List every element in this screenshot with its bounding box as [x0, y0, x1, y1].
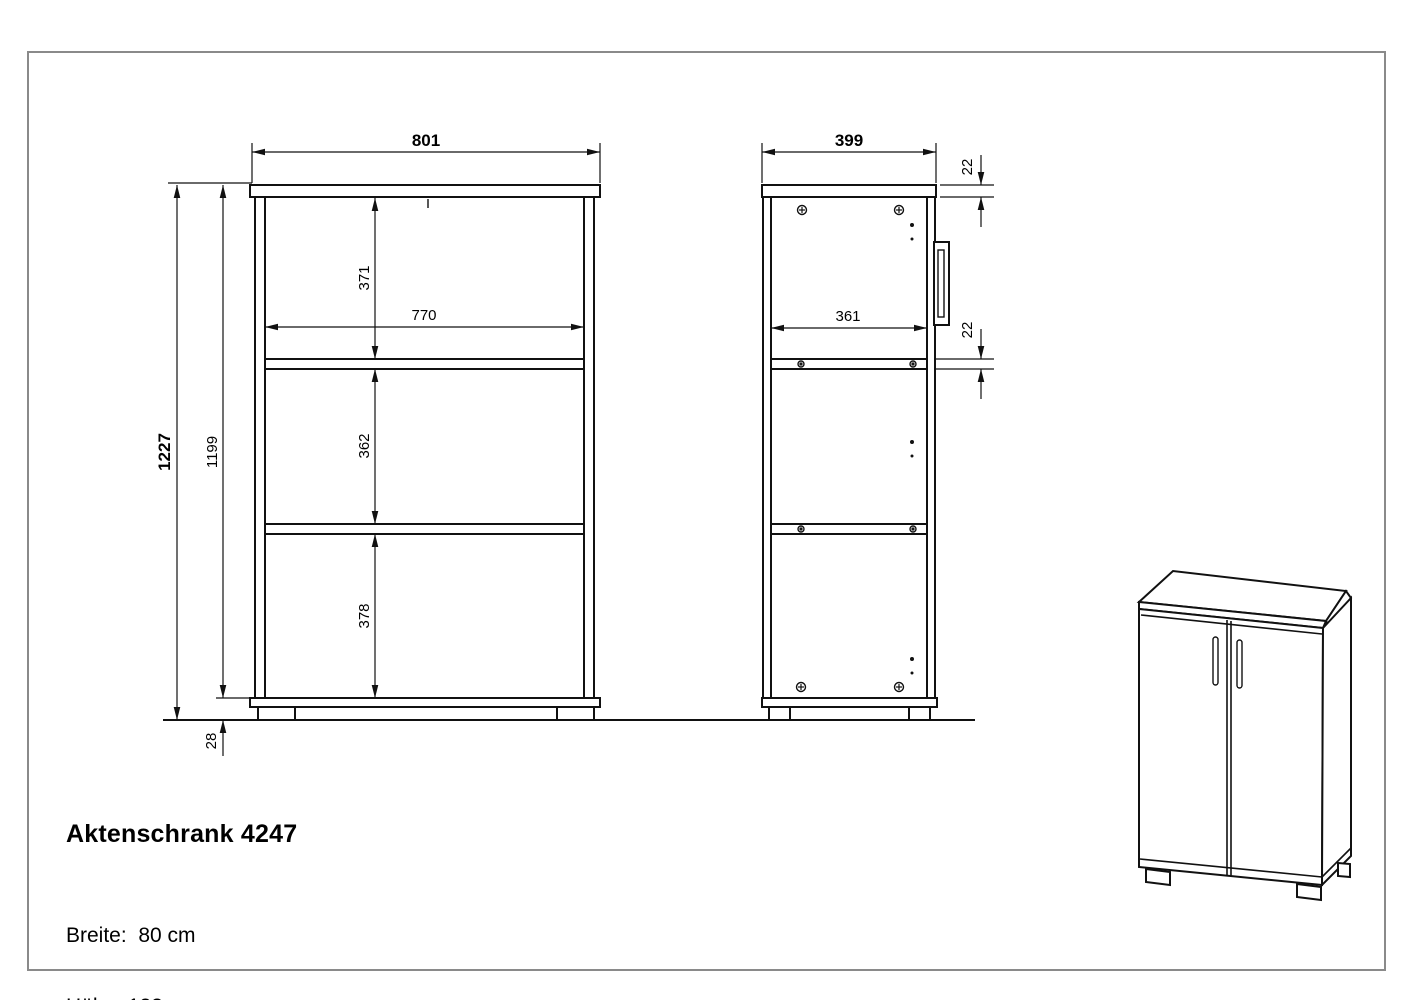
front-bottom-panel [250, 698, 600, 707]
front-foot-right [557, 707, 594, 720]
isometric-view [1139, 571, 1351, 900]
drawing-page: 801 770 371 362 378 1227 1199 28 [0, 0, 1414, 1000]
dim-inner-depth: 361 [835, 308, 860, 325]
keyhole-icon [425, 199, 431, 208]
dim-overall-height: 1227 [155, 433, 174, 471]
product-specs: Breite: 80 cm Höhe: 123 cm Tiefe: 40 cm [66, 877, 198, 1000]
side-top-panel [762, 185, 936, 197]
front-view [163, 185, 975, 720]
front-shelf-2 [265, 524, 584, 534]
dim-shelf-thickness: 22 [959, 322, 976, 339]
screw-icon [895, 683, 904, 692]
iso-left-handle [1213, 637, 1218, 685]
dim-top-section: 371 [356, 265, 373, 290]
dim-bottom-section: 378 [356, 603, 373, 628]
pin-holes [910, 223, 914, 675]
dim-foot-height: 28 [203, 733, 220, 750]
spec-hoehe: Höhe: 123 cm [66, 995, 198, 1000]
iso-right-handle [1237, 640, 1242, 688]
screw-icon [797, 683, 806, 692]
dim-body-height: 1199 [204, 436, 221, 468]
side-shelf-1 [771, 359, 927, 369]
dim-overall-depth: 399 [835, 131, 863, 150]
front-left-side-panel [255, 197, 265, 698]
iso-foot-left [1146, 869, 1170, 885]
shelf-screw-icon [798, 361, 916, 532]
side-handle-inner [938, 250, 944, 317]
spec-breite: Breite: 80 cm [66, 924, 198, 948]
product-title: Aktenschrank 4247 [66, 820, 297, 849]
side-foot-left [769, 707, 790, 720]
front-shelf-1 [265, 359, 584, 369]
dim-overall-width: 801 [412, 131, 440, 150]
front-view-dimensions: 801 770 371 362 378 1227 1199 28 [155, 131, 600, 756]
side-front-edge [763, 197, 771, 698]
side-foot-right [909, 707, 930, 720]
front-foot-left [258, 707, 295, 720]
dim-top-panel-thickness: 22 [959, 159, 976, 176]
screw-icon [798, 206, 807, 215]
iso-foot-back [1338, 863, 1350, 877]
iso-foot-right [1297, 884, 1321, 900]
technical-drawing: 801 770 371 362 378 1227 1199 28 [0, 0, 1414, 1000]
screw-icon [895, 206, 904, 215]
side-shelf-2 [771, 524, 927, 534]
front-top-panel [250, 185, 600, 197]
dim-middle-section: 362 [356, 433, 373, 458]
side-bottom-panel [762, 698, 937, 707]
side-view [762, 185, 949, 720]
iso-right-face [1322, 598, 1351, 885]
front-right-side-panel [584, 197, 594, 698]
dim-inner-width: 770 [411, 307, 436, 324]
